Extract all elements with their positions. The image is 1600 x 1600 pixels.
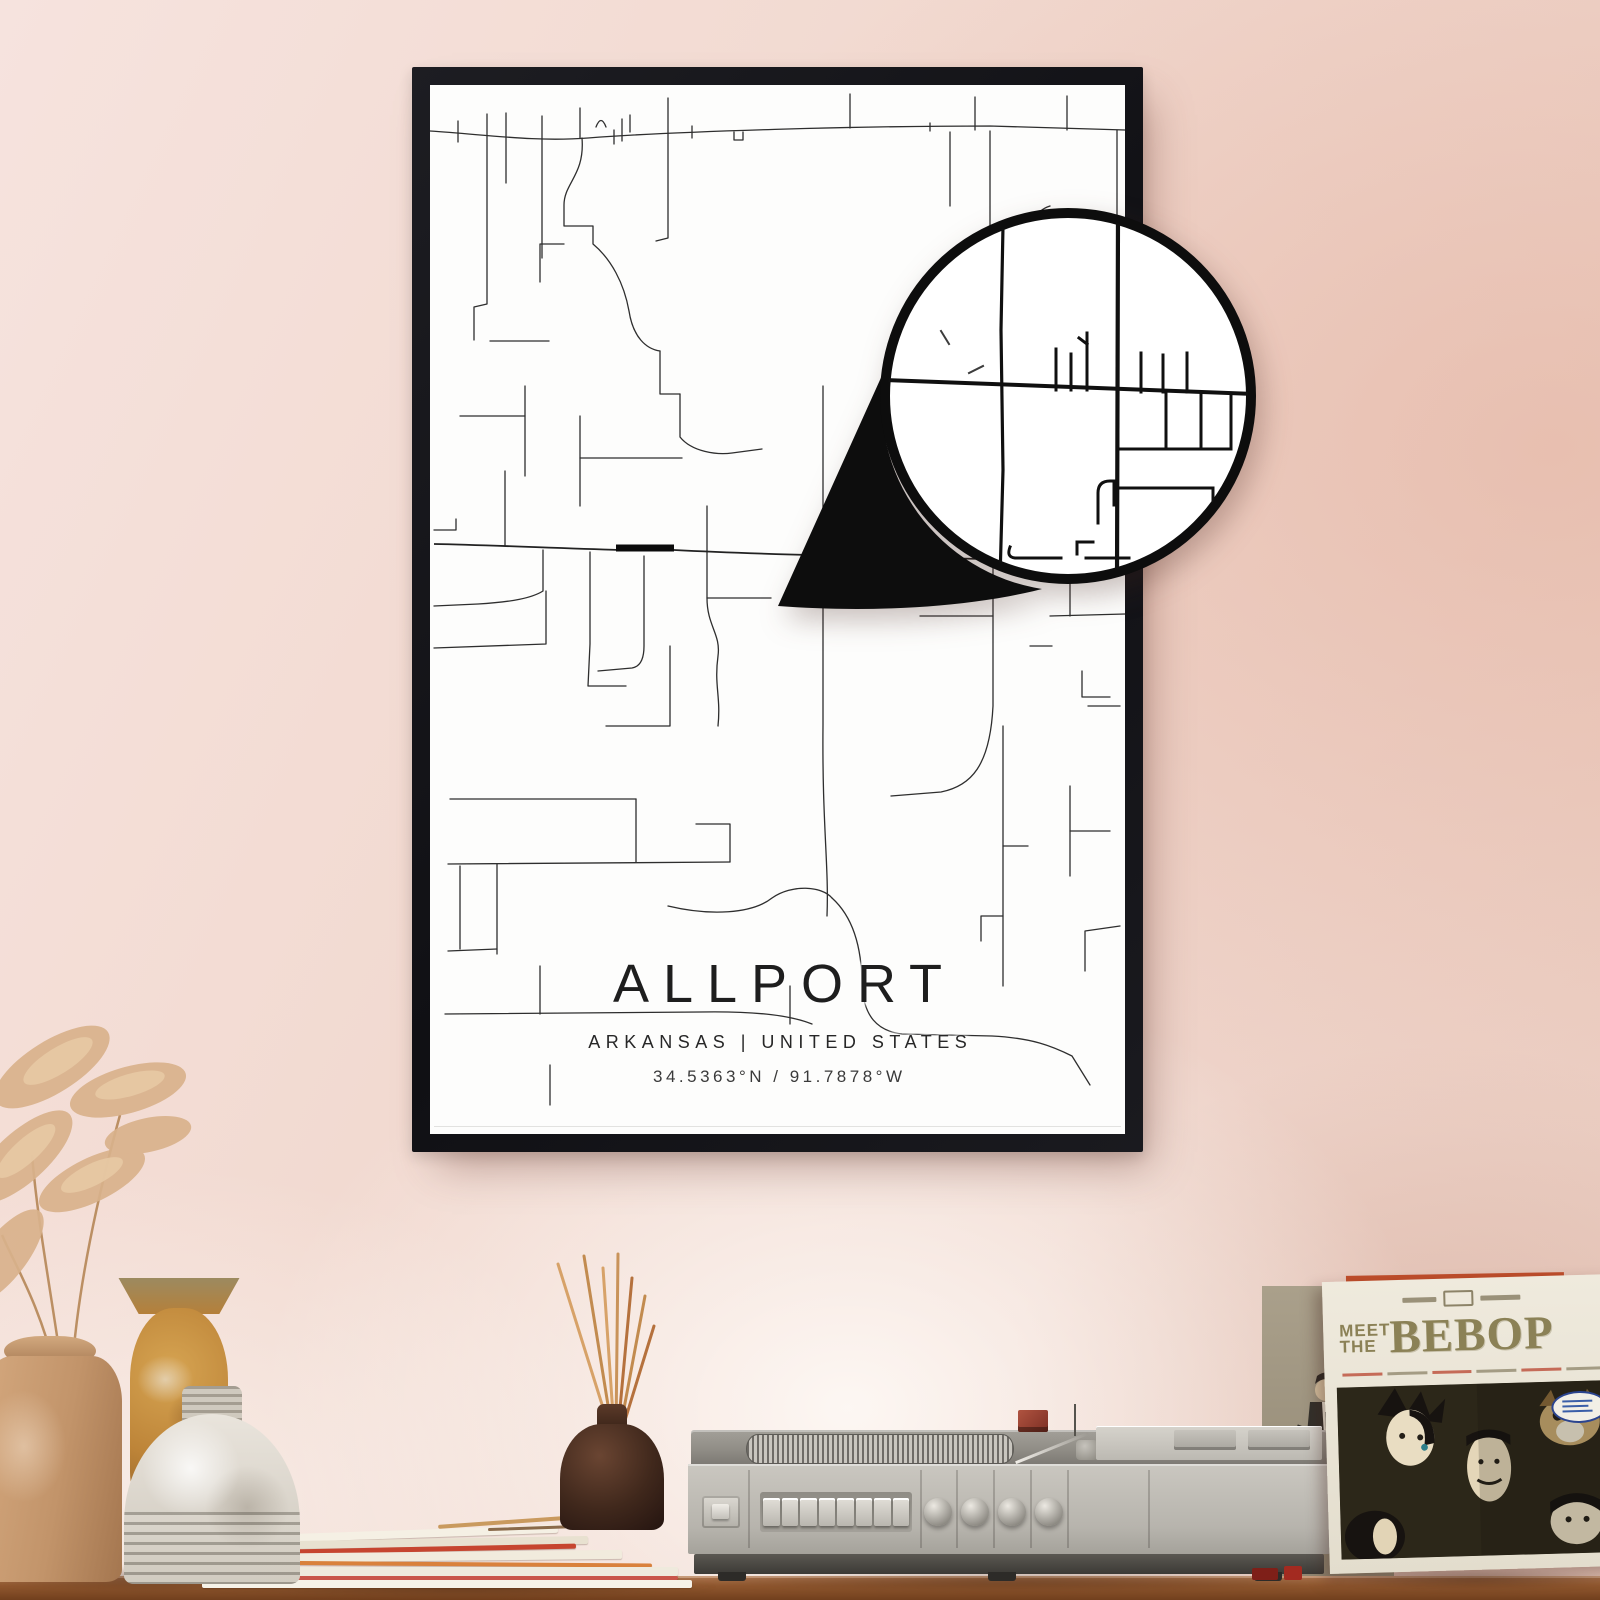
small-red-object [1252,1568,1278,1580]
tonearm-rod [1074,1404,1076,1436]
poster-coordinates: 34.5363°N / 91.7878°W [430,1067,1125,1087]
panel-divider [1148,1470,1150,1548]
turntable-foot [988,1572,1016,1581]
power-button [702,1496,740,1528]
poster-title: ALLPORT [430,953,1125,1015]
panel-divider [920,1470,922,1548]
white-vase-ribs [124,1512,300,1584]
turntable-base [694,1554,1324,1574]
turntable-foot [718,1572,746,1581]
tonearm-pivot [1076,1440,1098,1460]
map-poster: ALLPORT ARKANSAS | UNITED STATES 34.5363… [430,85,1125,1134]
switch-cap [1174,1430,1236,1450]
poster-subtitle: ARKANSAS | UNITED STATES [430,1032,1125,1053]
album-credits-line [1342,1366,1600,1376]
reed-diffuser [548,1252,678,1538]
panel-divider [1030,1470,1032,1548]
turntable-front-panel [688,1464,1330,1554]
control-lid [1096,1426,1322,1460]
preset-button-row [760,1492,912,1532]
tonearm-cartridge [1018,1410,1048,1432]
room-scene: ALLPORT ARKANSAS | UNITED STATES 34.5363… [0,0,1600,1600]
white-ribbed-vase [120,1386,304,1584]
panel-divider [993,1470,995,1548]
panel-divider [748,1470,750,1548]
panel-divider [956,1470,958,1548]
balance-knob [998,1498,1026,1526]
album-title: BEBOP [1389,1310,1555,1362]
push-button [837,1498,854,1526]
push-button [782,1498,799,1526]
tuning-knob [1035,1498,1063,1526]
push-button [893,1498,910,1526]
album-cover-photo [1337,1380,1600,1560]
push-button [856,1498,873,1526]
white-vase-body [124,1414,300,1584]
record-album: MEET THE BEBOP [1322,1274,1600,1574]
push-button [763,1498,780,1526]
poster-text-block: ALLPORT ARKANSAS | UNITED STATES 34.5363… [430,953,1125,1087]
album-header: MEET THE BEBOP [1339,1310,1555,1363]
main-artery-road [434,544,1125,562]
push-button [819,1498,836,1526]
tone-knob [961,1498,989,1526]
tan-vase [0,1336,122,1582]
volume-knob [924,1498,952,1526]
poster-frame: ALLPORT ARKANSAS | UNITED STATES 34.5363… [412,67,1143,1152]
album-meet-the: MEET THE [1339,1314,1384,1354]
tan-vase-body [0,1356,122,1582]
push-button [874,1498,891,1526]
record-player [688,1408,1330,1580]
panel-divider [1067,1470,1069,1548]
album-top-marks [1322,1286,1600,1310]
turntable-platter [746,1434,1014,1464]
switch-cap [1248,1430,1310,1450]
diffuser-bottle [560,1424,664,1530]
small-red-object [1284,1566,1302,1580]
push-button [800,1498,817,1526]
